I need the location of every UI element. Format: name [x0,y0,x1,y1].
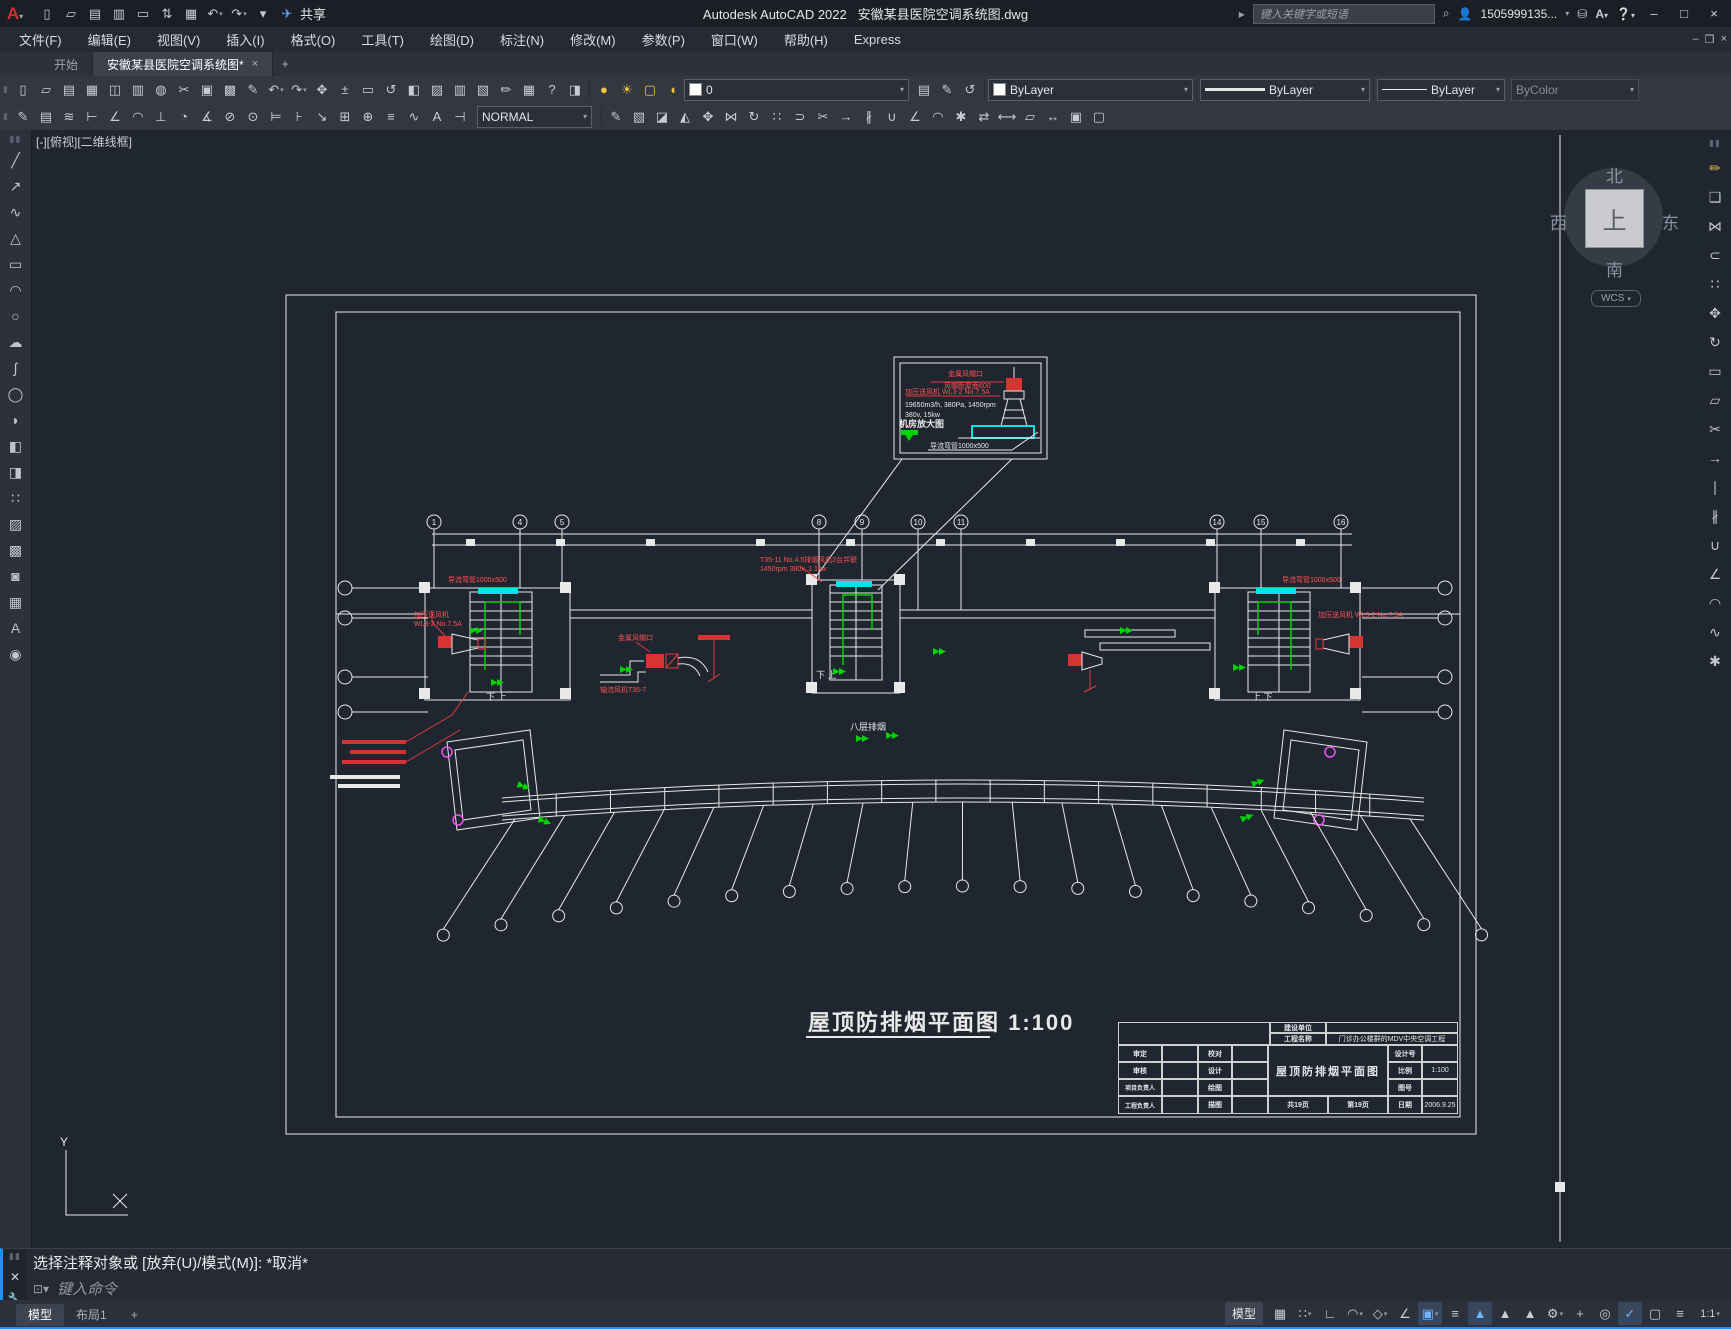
trim-icon[interactable]: ✂ [1703,419,1727,439]
svg-text:金属风帽口: 金属风帽口 [948,369,983,378]
print-icon[interactable]: ▦ [180,3,202,25]
move-icon[interactable]: ✥ [1703,303,1727,323]
selection-edge[interactable] [1555,135,1565,1242]
solid-cone-icon[interactable]: ◭ [674,106,696,128]
svg-text:1: 1 [432,518,437,527]
save-icon[interactable]: ▤ [84,3,106,25]
hardware-acceleration-icon[interactable]: ✓ [1618,1302,1642,1325]
search-icon[interactable]: ⌕ [1443,6,1450,21]
svg-text:下 上: 下 上 [486,692,507,702]
new-file-icon[interactable]: ▯ [12,79,34,101]
break-at-point-icon[interactable]: ∣ [1703,477,1727,497]
fillet-icon[interactable]: ◠ [1703,593,1727,613]
model-space-button[interactable]: 模型 [1225,1302,1263,1325]
plot-preview-icon[interactable]: ◫ [104,79,126,101]
match-properties-icon[interactable]: ✎ [242,79,264,101]
svg-text:上 下: 上 下 [1252,692,1273,702]
plan-title: 屋顶防排烟平面图 1:100 [808,1010,1074,1035]
dim-baseline-icon[interactable]: ⊨ [265,106,287,128]
hatch-icon[interactable]: ▨ [4,513,28,535]
svg-text:380v, 15kw: 380v, 15kw [905,412,941,419]
menu-bar: 文件(F)编辑(E)视图(V)插入(I)格式(O)工具(T)绘图(D)标注(N)… [0,27,1731,53]
copy-clip-icon[interactable]: ▣ [196,79,218,101]
dim-center-icon[interactable]: ⊙ [242,106,264,128]
extend-icon[interactable]: → [1703,448,1727,468]
svg-text:4: 4 [518,518,523,527]
dim-continue-icon[interactable]: ⊦ [288,106,310,128]
polyline-icon[interactable]: ∿ [4,201,28,223]
save-as-icon[interactable]: ▥ [108,3,130,25]
save-file-icon[interactable]: ▤ [58,79,80,101]
username[interactable]: 1505999135... [1481,7,1558,21]
menu-p[interactable]: 参数(P) [629,27,698,52]
construction-line-icon[interactable]: ↗ [4,175,28,197]
zoom-previous-icon[interactable]: ↺ [380,79,402,101]
autodesk-icon[interactable]: A▾ [1595,7,1608,21]
dim-linear-icon[interactable]: ⊢ [81,106,103,128]
menu-v[interactable]: 视图(V) [144,27,213,52]
mirror-icon[interactable]: ⋈ [1703,216,1727,236]
tab-close-icon[interactable]: × [252,58,258,70]
compass-north[interactable]: 北 [1606,162,1623,187]
dim-arc-icon[interactable]: ◠ [127,106,149,128]
minimize-button[interactable]: – [1643,6,1665,21]
rotate-3d-icon[interactable]: ↻ [743,106,765,128]
snap-mode-icon[interactable]: ∷▾ [1293,1302,1317,1325]
file-tab-row: 开始 安徽某县医院空调系统图*× + [0,52,1731,76]
svg-text:15: 15 [1257,518,1266,527]
join-icon[interactable]: ∪ [881,106,903,128]
extend-icon[interactable]: → [835,106,857,128]
create-block-icon[interactable]: ◨ [4,461,28,483]
svg-text:加压送风机 WL3-2 No.7.5A: 加压送风机 WL3-2 No.7.5A [905,387,990,396]
layer-viewport-icon[interactable]: ▢ [639,79,661,101]
menu-w[interactable]: 窗口(W) [698,27,771,52]
offset-icon[interactable]: ⊂ [1703,245,1727,265]
properties-icon[interactable]: ◧ [403,79,425,101]
customize-icon[interactable]: ≡ [1668,1302,1692,1325]
open-file-icon[interactable]: ▱ [35,79,57,101]
arc-icon[interactable]: ◠ [4,279,28,301]
layer-previous-icon[interactable]: ↺ [959,79,981,101]
zoom-window-icon[interactable]: ▭ [357,79,379,101]
clean-screen-icon[interactable]: ▢ [1643,1302,1667,1325]
infocenter-icon[interactable]: ◨ [564,79,586,101]
svg-text:加压送风机: 加压送风机 [414,610,449,619]
ungroup-icon[interactable]: ▢ [1088,106,1110,128]
print-icon[interactable]: ▦ [81,79,103,101]
equipment-rack-right [1068,630,1210,692]
dim-ordinate-icon[interactable]: ⊥ [150,106,172,128]
svg-text:9: 9 [860,518,865,527]
scale-icon[interactable]: ▱ [1019,106,1041,128]
dim-leader-icon[interactable]: ↘ [311,106,333,128]
dim-diameter-icon[interactable]: ⊘ [219,106,241,128]
layer-combo[interactable]: 0▾ [684,79,909,101]
app-store-icon[interactable]: ⛁ [1577,7,1587,21]
share-icon[interactable]: ✈ [276,3,298,25]
new-layout-icon[interactable]: + [119,1304,150,1326]
trim-icon[interactable]: ✂ [812,106,834,128]
grid-icon[interactable]: ▦ [1268,1302,1292,1325]
array-icon[interactable]: ∷ [1703,274,1727,294]
dimstyle-combo[interactable]: NORMAL▾ [477,106,592,128]
circle-icon[interactable]: ○ [4,305,28,327]
markup-icon[interactable]: ✏ [495,79,517,101]
svg-text:10: 10 [914,518,923,527]
plotstyle-combo: ByColor▾ [1511,79,1639,101]
search-expand-icon[interactable]: ▸ [1239,7,1245,21]
layout1-tab[interactable]: 布局1 [64,1304,119,1326]
zone-label: 八层排烟 [850,721,886,732]
new-icon[interactable]: ▯ [36,3,58,25]
dim-align-text-icon[interactable]: ≡ [380,106,402,128]
cut-icon[interactable]: ✂ [173,79,195,101]
canopy-roof [437,780,1487,941]
ortho-icon[interactable]: ∟ [1318,1302,1342,1325]
solid-box-icon[interactable]: ▧ [628,106,650,128]
isolate-objects-icon[interactable]: ◎ [1593,1302,1617,1325]
doc-minimize-button[interactable]: – [1693,33,1699,46]
qat-more-icon[interactable]: ▾ [252,3,274,25]
svg-text:T35-11 No.4.5排烟风机2台并联: T35-11 No.4.5排烟风机2台并联 [760,555,857,564]
command-prompt: 选择注释对象或 [放弃(U)/模式(M)]: *取消* [33,1252,308,1273]
username-dropdown-icon[interactable]: ▾ [1565,9,1569,18]
dim-text-edit-icon[interactable]: ▤ [35,106,57,128]
rotate-icon[interactable]: ↻ [1703,332,1727,352]
search-input[interactable]: 键入关键字或短语 [1253,4,1435,24]
menu-t[interactable]: 工具(T) [348,27,417,52]
dim-angular-icon[interactable]: ∡ [196,106,218,128]
lineweight-combo[interactable]: ByLayer▾ [1200,79,1370,101]
tab-document[interactable]: 安徽某县医院空调系统图*× [93,52,273,76]
object-snap-icon[interactable]: ▣▾ [1418,1302,1442,1325]
chamfer-icon[interactable]: ∠ [1703,564,1727,584]
menu-m[interactable]: 修改(M) [557,27,629,52]
axial-fan-left: 金属风帽口 轴流风机T35-7 [600,633,730,694]
annotation-scale-value[interactable]: 1:1▾ [1693,1302,1727,1325]
line-icon[interactable]: ╱ [4,149,28,171]
user-icon[interactable]: 👤 [1458,7,1473,21]
offset-icon[interactable]: ⊃ [789,106,811,128]
status-bar: 模型 布局1 + 模型 ▦∷▾∟◠▾◇▾∠▣▾≡▲▲▲⚙▾+◎✓▢≡ 1:1▾ [0,1300,1731,1329]
draw-toolbar: ▮▮ ╱↗∿△▭◠○☁∫◯◗◧◨∷▨▩◙▦A◉ [0,130,32,1248]
redo-icon[interactable]: ↷▾ [288,79,310,101]
menu-d[interactable]: 绘图(D) [417,27,487,52]
chamfer-icon[interactable]: ∠ [904,106,926,128]
share-label[interactable]: 共享 [300,4,326,23]
view-compass[interactable]: 上 北 南 西 东 [1556,160,1671,275]
solid-wedge-icon[interactable]: ◪ [651,106,673,128]
dim-edit-icon[interactable]: ✎ [12,106,34,128]
redo-icon[interactable]: ↷▾ [228,3,250,25]
machine-room-detail: 金属风帽口 风帽距屋面600 加压送风机 WL3-2 No.7.5A 19650… [812,357,1047,590]
undo-icon[interactable]: ↶▾ [265,79,287,101]
svg-text:轴流风机T35-7: 轴流风机T35-7 [600,685,646,694]
mtext-icon[interactable]: A [4,617,28,639]
explode-icon[interactable]: ✱ [1703,651,1727,671]
svg-text:14: 14 [1213,518,1222,527]
crosshair-cursor [113,1194,127,1208]
web-icon[interactable]: ◍ [150,79,172,101]
compass-south[interactable]: 南 [1606,256,1623,281]
sheet-outer-border [286,295,1476,1134]
svg-text:机房放大图: 机房放大图 [899,418,944,429]
dim-update-icon[interactable]: ≋ [58,106,80,128]
layer-lock-icon[interactable]: ◖ [662,79,684,101]
title-block: 建设单位 工程名称 门诊办公楼群的MDV中央空调工程 审定 校对 屋顶防排烟平面… [1118,1022,1458,1114]
annotation-scale-icon-icon[interactable]: ▲ [1518,1302,1542,1325]
join-icon[interactable]: ∪ [1703,535,1727,555]
tool-palettes-icon[interactable]: ▥ [449,79,471,101]
array-3d-icon[interactable]: ∷ [766,106,788,128]
paste-icon[interactable]: ▩ [219,79,241,101]
svg-text:1450rpm 380v, 1.1kw: 1450rpm 380v, 1.1kw [760,566,827,573]
publish-icon[interactable]: ▥ [127,79,149,101]
sheet-set-icon[interactable]: ▧ [472,79,494,101]
undo-icon[interactable]: ↶▾ [204,3,226,25]
layer-properties-icon[interactable]: ▤ [913,79,935,101]
ellipse-arc-icon[interactable]: ◗ [4,409,28,431]
drawing-workspace[interactable]: ▮▮ ╱↗∿△▭◠○☁∫◯◗◧◨∷▨▩◙▦A◉ ▮▮ ✏❏⋈⊂∷✥↻▭▱✂→∣∦… [0,130,1731,1248]
wcs-selector[interactable]: WCS▾ [1591,290,1641,307]
svg-text:加压送风机 WL3-2 No.7.5A: 加压送风机 WL3-2 No.7.5A [1318,610,1403,619]
modify-toolbar: ▮▮ ✏❏⋈⊂∷✥↻▭▱✂→∣∦∪∠◠∿✱ [1701,138,1729,671]
close-button[interactable]: × [1703,6,1725,21]
design-center-icon[interactable]: ▨ [426,79,448,101]
wing-left [442,730,540,830]
group-icon[interactable]: ▣ [1065,106,1087,128]
app-logo-icon[interactable]: A▾ [0,4,30,24]
svg-text:8: 8 [817,518,822,527]
calculator-icon[interactable]: ▦ [518,79,540,101]
svg-text:19650m3/h, 380Pa, 1450rpm: 19650m3/h, 380Pa, 1450rpm [905,402,996,409]
help-icon[interactable]: ❔▾ [1616,7,1635,21]
plot-stamp-icon[interactable]: ▭ [132,3,154,25]
tab-new-icon[interactable]: + [273,57,297,71]
layer-thaw-icon[interactable]: ☀ [616,79,638,101]
menu-o[interactable]: 格式(O) [278,27,349,52]
copy-icon[interactable]: ❏ [1703,187,1727,207]
svg-text:金属风帽口: 金属风帽口 [618,633,653,642]
ellipse-icon[interactable]: ◯ [4,383,28,405]
help-icon[interactable]: ? [541,79,563,101]
svg-text:WL3-2 No.7.5A: WL3-2 No.7.5A [414,621,462,628]
insert-block-icon[interactable]: ◧ [4,435,28,457]
lengthen-icon[interactable]: ↔ [1042,106,1064,128]
svg-text:导流弯管1000x500: 导流弯管1000x500 [1282,575,1341,584]
tab-start[interactable]: 开始 [40,52,93,76]
svg-text:导流弯管1000x500: 导流弯管1000x500 [448,575,507,584]
zoom-realtime-icon[interactable]: ± [334,79,356,101]
add-selected-icon[interactable]: ◉ [4,643,28,665]
viewcube[interactable]: 上 [1585,189,1644,248]
standard-toolbar: ▮ ▯▱▤▦◫▥◍✂▣▩✎↶▾↷▾✥±▭↺◧▨▥▧✏▦?◨ ●☀▢◖ 0▾ ▤✎… [0,76,1731,104]
plan-canvas[interactable]: 金属风帽口 风帽距屋面600 加压送风机 WL3-2 No.7.5A 19650… [0,130,1731,1248]
svg-text:11: 11 [957,518,966,527]
command-input[interactable]: 键入命令 [57,1278,117,1299]
align-icon[interactable]: ⇄ [973,106,995,128]
doc-restore-button[interactable]: ❐ [1705,33,1715,46]
text-style-icon[interactable]: A [426,106,448,128]
rectangle-icon[interactable]: ▭ [4,253,28,275]
model-tab[interactable]: 模型 [16,1304,64,1326]
break-icon[interactable]: ∦ [858,106,880,128]
lineweight-display-icon[interactable]: ≡ [1443,1302,1467,1325]
open-icon[interactable]: ▱ [60,3,82,25]
region-icon[interactable]: ◙ [4,565,28,587]
polygon-icon[interactable]: △ [4,227,28,249]
object-snap-tracking-icon[interactable]: ∠ [1393,1302,1417,1325]
crosshair-icon[interactable]: + [1568,1302,1592,1325]
dim-aligned-icon[interactable]: ∠ [104,106,126,128]
svg-text:Y: Y [60,1135,68,1149]
menu-n[interactable]: 标注(N) [487,27,557,52]
workspace-gear-icon[interactable]: ⚙▾ [1543,1302,1567,1325]
stretch-icon[interactable]: ▱ [1703,390,1727,410]
sheet-inner-border [336,312,1460,1117]
layer-match-icon[interactable]: ✎ [936,79,958,101]
louver-cluster [330,692,468,788]
maximize-button[interactable]: □ [1673,6,1695,21]
svg-text:导流弯管1000x500: 导流弯管1000x500 [930,441,989,450]
layer-color-swatch [689,83,702,96]
dimension-modify-toolbar: ▮ ✎▤≋⊢∠◠⊥◔∡⊘⊙⊨⊦↘⊞⊕≡∿A⊣ NORMAL▾ ✎▧◪◭✥⋈↻∷⊃… [0,103,1731,131]
menu-h[interactable]: 帮助(H) [771,27,841,52]
table-icon[interactable]: ▦ [4,591,28,613]
dim-oblique-icon[interactable]: ⊕ [357,106,379,128]
compass-east[interactable]: 东 [1662,209,1679,234]
fillet-icon[interactable]: ◠ [927,106,949,128]
pan-icon[interactable]: ✥ [311,79,333,101]
stretch-icon[interactable]: ⟷ [996,106,1018,128]
color-combo[interactable]: ByLayer▾ [988,79,1193,101]
brush-icon[interactable]: ✎ [605,106,627,128]
svg-text:5: 5 [560,518,565,527]
dim-tolerance-icon[interactable]: ⊞ [334,106,356,128]
revision-cloud-icon[interactable]: ☁ [4,331,28,353]
viewport-controls[interactable]: [-][俯视][二维线框] [36,133,132,150]
doc-close-button[interactable]: × [1721,33,1727,46]
dim-radius-icon[interactable]: ◔ [173,106,195,128]
menu-e[interactable]: 编辑(E) [75,27,144,52]
break-icon[interactable]: ∦ [1703,506,1727,526]
stair-core-center: T35-11 No.4.5排烟风机2台并联 1450rpm 380v, 1.1k… [760,555,905,693]
dim-style-icon[interactable]: ∿ [403,106,425,128]
command-close-icon[interactable]: ✕ [10,1270,20,1284]
recent-commands-icon[interactable]: ⊡▾ [33,1282,49,1296]
linetype-combo[interactable]: ByLayer▾ [1377,79,1505,101]
spline-icon[interactable]: ∫ [4,357,28,379]
autoscale-icon[interactable]: ▲ [1493,1302,1517,1325]
scale-icon[interactable]: ▭ [1703,361,1727,381]
svg-text:16: 16 [1337,518,1346,527]
dim-break-icon[interactable]: ⊣ [449,106,471,128]
polar-tracking-icon[interactable]: ◠▾ [1343,1302,1367,1325]
compass-west[interactable]: 西 [1550,209,1567,234]
command-line-panel[interactable]: ▮▮ ✕ 🔧 选择注释对象或 [放弃(U)/模式(M)]: *取消* ⊡▾ 键入… [0,1248,1731,1300]
erase-icon[interactable]: ✏ [1703,158,1727,178]
transfer-icon[interactable]: ⇅ [156,3,178,25]
quick-access-toolbar: ▯▱▤▥▭⇅▦↶▾↷▾▾✈ [36,3,298,25]
grid-bubbles: 145891011141516 [427,515,1348,610]
isodraft-icon[interactable]: ◇▾ [1368,1302,1392,1325]
title-bar: A▾ ▯▱▤▥▭⇅▦↶▾↷▾▾✈ 共享 Autodesk AutoCAD 202… [0,0,1731,27]
mirror-3d-icon[interactable]: ⋈ [720,106,742,128]
blend-icon[interactable]: ∿ [1703,622,1727,642]
move-3d-icon[interactable]: ✥ [697,106,719,128]
annotation-visibility-icon[interactable]: ▲ [1468,1302,1492,1325]
explode-icon[interactable]: ✱ [950,106,972,128]
menu-f[interactable]: 文件(F) [6,27,75,52]
gradient-icon[interactable]: ▩ [4,539,28,561]
point-icon[interactable]: ∷ [4,487,28,509]
menu-i[interactable]: 插入(I) [213,27,277,52]
menu-express[interactable]: Express [841,27,914,52]
layer-on-icon[interactable]: ● [593,79,615,101]
